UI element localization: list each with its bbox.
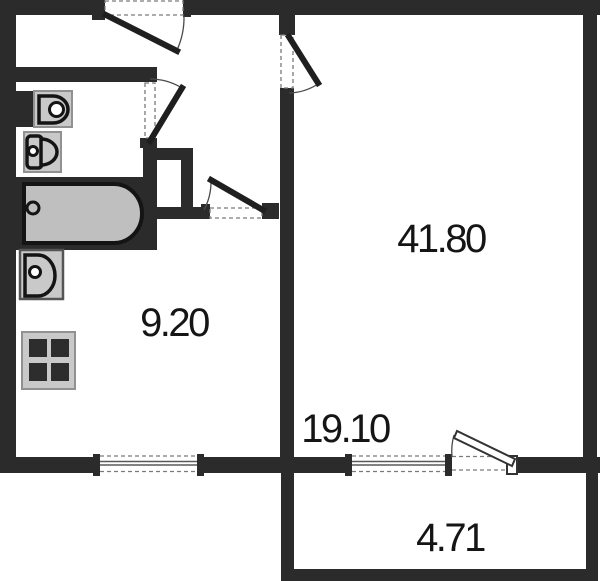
- floor-plan: 41.80 9.20 19.10 4.71: [0, 0, 600, 581]
- stove-icon: [22, 332, 75, 389]
- balcony-door: [452, 431, 517, 474]
- kitchen-door-frame: [210, 208, 262, 218]
- area-label-main-room: 41.80: [397, 217, 486, 261]
- entrance-door: [105, 1, 184, 51]
- bathroom-door: [145, 79, 182, 141]
- kitchen-door: [204, 180, 263, 218]
- kitchen-window: [100, 456, 197, 472]
- area-label-room-lower: 19.10: [301, 407, 390, 451]
- main-room-window: [352, 456, 445, 472]
- washbasin-icon: [16, 91, 72, 127]
- kitchen-sink-icon: [20, 250, 63, 299]
- entrance-door-frame: [105, 1, 183, 15]
- toilet-icon: [24, 132, 61, 172]
- entrance-door-leaf: [106, 15, 177, 51]
- area-label-kitchen: 9.20: [140, 301, 209, 345]
- bathtub-icon: [16, 177, 150, 250]
- balcony-door-leaf: [454, 431, 515, 466]
- kitchen-door-leaf: [211, 180, 263, 210]
- main-room-door: [281, 35, 318, 93]
- entrance-door-swing-arc: [177, 16, 184, 50]
- floor-plan-drawing: 41.80 9.20 19.10 4.71: [0, 0, 600, 581]
- area-label-balcony: 4.71: [416, 516, 485, 560]
- walls: [0, 0, 600, 581]
